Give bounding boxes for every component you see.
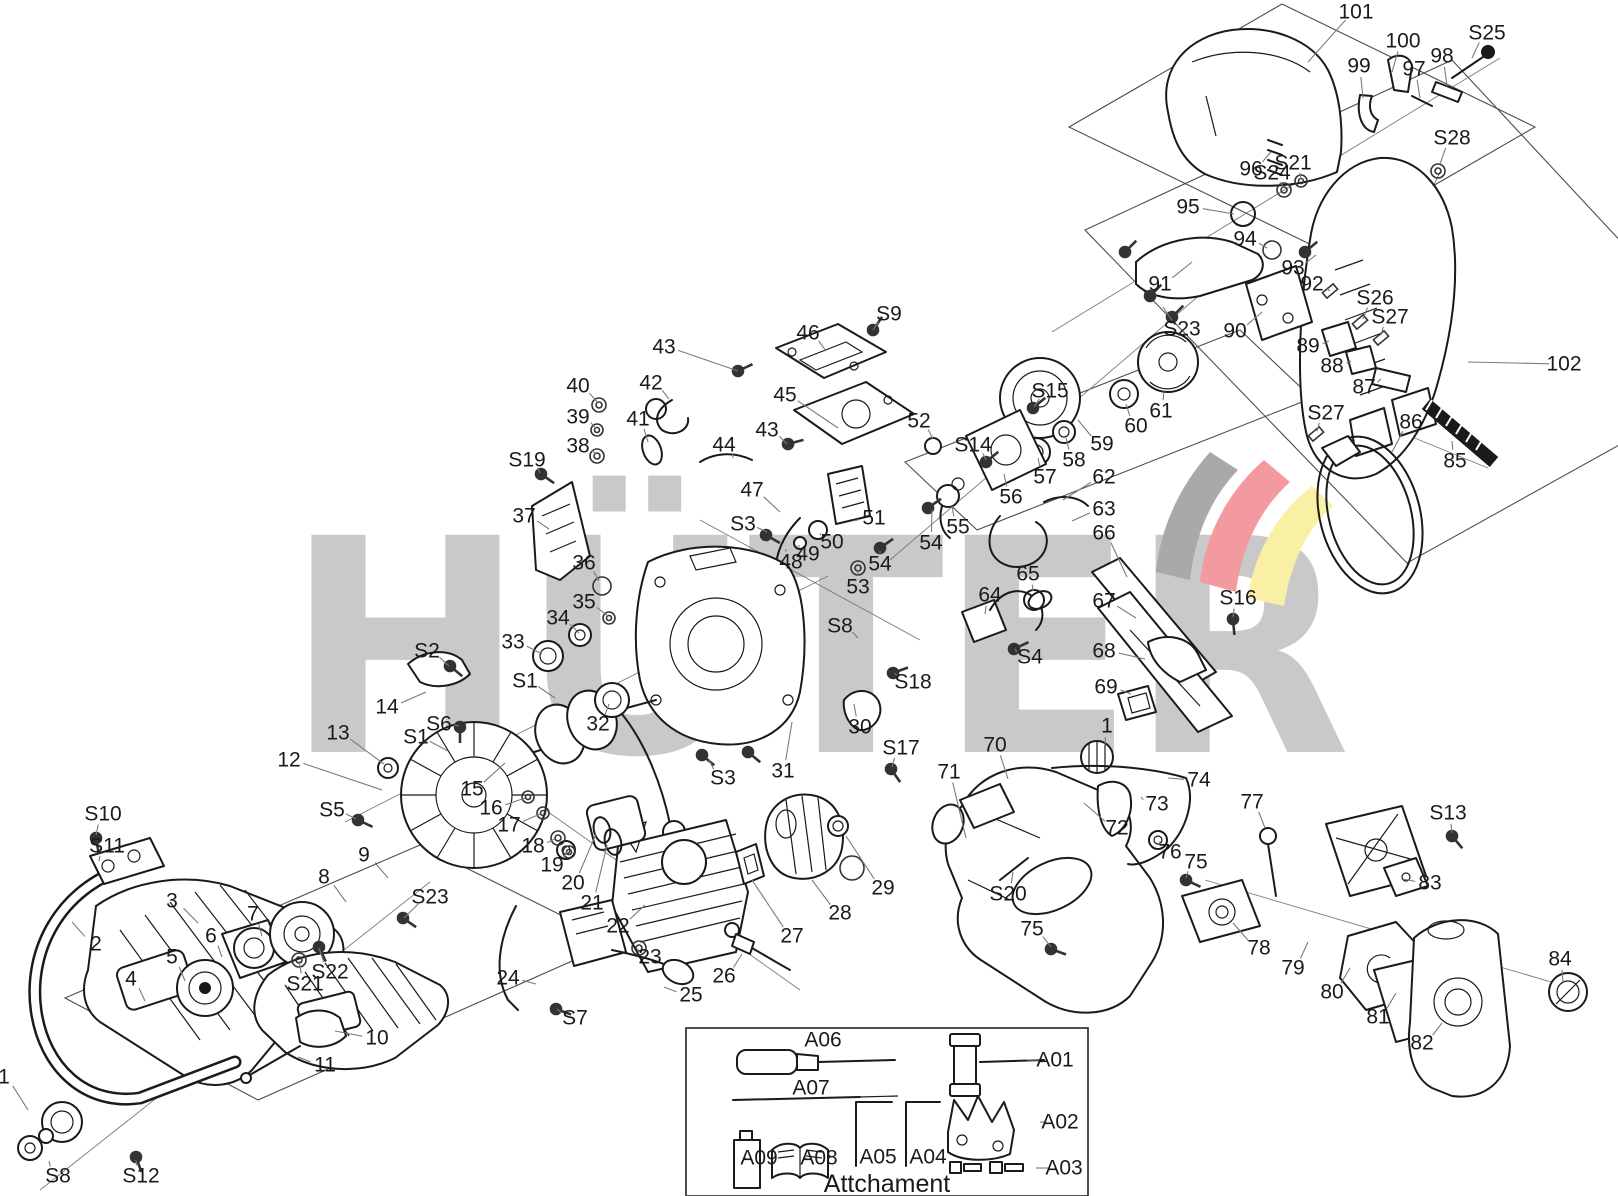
part-label-91: 91	[1148, 273, 1171, 296]
part-label-67: 67	[1092, 590, 1115, 613]
part-label-S28: S28	[1433, 127, 1470, 150]
part-label-S6: S6	[426, 713, 452, 736]
part-label-30: 30	[848, 716, 871, 739]
part-label-86: 86	[1399, 411, 1422, 434]
part-label-74: 74	[1187, 769, 1211, 792]
part-label-50: 50	[820, 531, 843, 554]
throttle-trigger-drawing	[296, 1011, 346, 1047]
part-label-43: 43	[652, 336, 675, 359]
part-label-76: 76	[1158, 841, 1181, 864]
choke-rod-drawing	[1260, 828, 1276, 896]
leader-line	[1472, 42, 1479, 58]
part-label-71: 71	[937, 761, 960, 784]
part-label-59: 59	[1090, 433, 1113, 456]
part-label-S18: S18	[894, 671, 931, 694]
part-label-97: 97	[1402, 58, 1425, 81]
ring-icon	[840, 856, 864, 880]
part-label-S23: S23	[1163, 318, 1200, 341]
part-label-1: 1	[1101, 715, 1113, 738]
part-label-17: 17	[497, 814, 520, 837]
leader-line	[334, 885, 346, 902]
brake-link-drawing	[1346, 346, 1376, 374]
part-label-S15: S15	[1031, 380, 1068, 403]
part-label-A06: A06	[804, 1029, 841, 1052]
part-label-S8: S8	[827, 615, 853, 638]
part-label-56: 56	[999, 486, 1022, 509]
part-label-28: 28	[828, 902, 851, 925]
part-label-88: 88	[1320, 355, 1343, 378]
part-label-73: 73	[1145, 793, 1168, 816]
part-label-S3: S3	[710, 767, 736, 790]
part-label-S9: S9	[876, 303, 902, 326]
clutch-washer-drawing	[1110, 380, 1138, 408]
part-label-78: 78	[1247, 937, 1270, 960]
part-label-S20: S20	[989, 883, 1026, 906]
part-label-A08: A08	[800, 1147, 837, 1170]
part-label-S10: S10	[84, 803, 121, 826]
part-label-3: 3	[166, 890, 178, 913]
part-label-46: 46	[796, 322, 819, 345]
part-label-S4: S4	[1017, 646, 1043, 669]
part-label-S21: S21	[1274, 152, 1311, 175]
part-label-87: 87	[1352, 376, 1375, 399]
part-label-S12: S12	[122, 1165, 159, 1188]
part-label-80: 80	[1320, 981, 1343, 1004]
ring-icon	[1263, 241, 1281, 259]
part-label-41: 41	[626, 408, 649, 431]
part-label-31: 31	[771, 760, 794, 783]
fuel-cap-drawing	[1549, 973, 1587, 1011]
part-label-84: 84	[1548, 948, 1572, 971]
part-label-58: 58	[1062, 449, 1085, 472]
exploded-view-svg: HÜTER	[0, 0, 1618, 1196]
carburetor-drawing	[1182, 880, 1260, 942]
part-label-101: 101	[1338, 1, 1373, 24]
needle-bearing-drawing	[1053, 421, 1075, 443]
screw-icon	[783, 439, 804, 450]
part-label-S25: S25	[1468, 22, 1505, 45]
part-label-S3: S3	[730, 513, 756, 536]
part-label-34: 34	[546, 607, 570, 630]
leader-line	[931, 510, 932, 532]
part-label-52: 52	[907, 410, 930, 433]
screw-icon	[1181, 875, 1201, 887]
part-label-44: 44	[712, 434, 736, 457]
part-label-98: 98	[1430, 45, 1453, 68]
part-label-66: 66	[1092, 522, 1115, 545]
part-label-10: 10	[365, 1027, 388, 1050]
leader-line	[596, 845, 607, 892]
part-label-70: 70	[983, 734, 1006, 757]
hook-drawing	[1359, 95, 1378, 132]
leader-line	[1417, 80, 1420, 98]
part-label-14: 14	[375, 696, 399, 719]
part-label-S27: S27	[1307, 402, 1344, 425]
leader-line	[1468, 362, 1549, 364]
part-label-29: 29	[871, 877, 894, 900]
part-label-S5: S5	[319, 799, 345, 822]
oil-line-valve-drawing	[925, 438, 941, 454]
leader-line	[846, 836, 874, 879]
part-label-A05: A05	[859, 1146, 896, 1169]
part-label-9: 9	[358, 844, 370, 867]
bolt-drawing	[1452, 45, 1495, 78]
part-label-1: 1	[0, 1066, 10, 1089]
part-label-61: 61	[1149, 400, 1172, 423]
kill-wire-drawing	[500, 906, 518, 1010]
part-label-4: 4	[125, 968, 137, 991]
part-label-S1: S1	[512, 670, 538, 693]
part-label-A09: A09	[740, 1147, 777, 1170]
part-label-68: 68	[1092, 640, 1115, 663]
part-label-62: 62	[1092, 466, 1115, 489]
carb-gasket-drawing	[794, 382, 914, 444]
screw-icon	[1120, 241, 1137, 258]
clutch-drawing	[1138, 332, 1198, 392]
part-label-45: 45	[773, 384, 796, 407]
part-label-53: 53	[846, 576, 869, 599]
part-label-S27: S27	[1371, 306, 1408, 329]
part-label-S16: S16	[1219, 587, 1256, 610]
leader-line	[752, 880, 783, 927]
part-label-23: 23	[638, 946, 661, 969]
part-label-65: 65	[1016, 563, 1039, 586]
screw-icon	[1447, 831, 1463, 849]
part-label-48: 48	[779, 551, 802, 574]
flange-nut-drawing	[828, 816, 848, 836]
part-label-33: 33	[501, 631, 524, 654]
part-label-69: 69	[1094, 676, 1117, 699]
leader-line	[662, 390, 669, 399]
leader-line	[375, 863, 388, 878]
part-label-A02: A02	[1041, 1111, 1078, 1134]
part-label-79: 79	[1281, 957, 1304, 980]
attachment-box: Attchament	[686, 1028, 1088, 1196]
part-label-99: 99	[1347, 55, 1370, 78]
part-label-51: 51	[862, 507, 885, 530]
part-label-95: 95	[1176, 196, 1199, 219]
part-label-27: 27	[780, 925, 803, 948]
fuel-filter-drawing	[638, 433, 665, 467]
part-label-38: 38	[566, 435, 589, 458]
leader-line	[1203, 209, 1234, 214]
oil-seal-drawing	[18, 1102, 82, 1160]
leader-line	[72, 922, 85, 937]
part-label-36: 36	[572, 552, 595, 575]
part-label-S19: S19	[508, 449, 545, 472]
crankcase-drawing	[636, 547, 805, 745]
part-drawings: Attchament	[18, 29, 1587, 1196]
part-label-19: 19	[540, 854, 563, 877]
retaining-ring-drawing	[1231, 202, 1255, 226]
leader-line	[13, 1086, 28, 1110]
muffler-drawing	[765, 794, 843, 878]
part-label-92: 92	[1300, 273, 1323, 296]
part-label-40: 40	[566, 375, 589, 398]
leader-line	[1032, 585, 1033, 591]
part-label-54: 54	[919, 532, 943, 555]
part-label-90: 90	[1223, 320, 1246, 343]
part-label-26: 26	[712, 965, 735, 988]
part-label-43: 43	[755, 419, 778, 442]
nut-icon	[592, 398, 606, 412]
part-label-25: 25	[679, 984, 702, 1007]
part-label-21: 21	[580, 892, 603, 915]
part-label-S21: S21	[286, 973, 323, 996]
part-label-S17: S17	[882, 737, 919, 760]
part-label-100: 100	[1385, 30, 1420, 53]
part-label-85: 85	[1443, 450, 1466, 473]
part-label-81: 81	[1366, 1006, 1389, 1029]
part-label-77: 77	[1240, 791, 1263, 814]
part-label-2: 2	[90, 933, 102, 956]
part-label-5: 5	[166, 946, 178, 969]
tank-drawing	[1409, 920, 1510, 1096]
part-label-39: 39	[566, 406, 589, 429]
part-label-S13: S13	[1429, 802, 1466, 825]
leader-line	[1440, 148, 1446, 164]
part-label-12: 12	[277, 749, 300, 772]
part-label-63: 63	[1092, 498, 1115, 521]
leader-line	[678, 350, 738, 371]
part-label-S23: S23	[411, 886, 448, 909]
part-label-S8: S8	[45, 1165, 71, 1188]
part-label-64: 64	[978, 584, 1002, 607]
part-label-7: 7	[247, 903, 259, 926]
av-buffer-drawing	[1081, 741, 1113, 773]
chainsaw-parts-diagram: HÜTER	[0, 0, 1618, 1196]
part-label-A07: A07	[792, 1077, 829, 1100]
part-label-22: 22	[606, 915, 629, 938]
leader-line	[664, 987, 677, 992]
part-label-35: 35	[572, 591, 595, 614]
part-label-S7: S7	[562, 1007, 588, 1030]
part-label-75: 75	[1020, 918, 1043, 941]
part-label-S2: S2	[414, 640, 440, 663]
part-label-89: 89	[1296, 335, 1319, 358]
part-label-32: 32	[586, 713, 609, 736]
part-label-72: 72	[1105, 817, 1128, 840]
part-label-8: 8	[318, 866, 330, 889]
part-label-83: 83	[1418, 872, 1441, 895]
part-label-13: 13	[326, 722, 349, 745]
part-label-A03: A03	[1045, 1157, 1082, 1180]
part-label-11: 11	[314, 1054, 336, 1077]
part-label-S1: S1	[403, 726, 429, 749]
part-label-75: 75	[1184, 851, 1207, 874]
part-label-A01: A01	[1036, 1049, 1073, 1072]
part-label-6: 6	[205, 925, 217, 948]
part-label-37: 37	[512, 505, 535, 528]
part-label-A04: A04	[909, 1146, 947, 1169]
part-label-57: 57	[1033, 466, 1056, 489]
leader-line	[592, 450, 596, 454]
nut-icon	[551, 831, 565, 845]
part-label-54: 54	[868, 553, 892, 576]
part-label-102: 102	[1546, 353, 1581, 376]
part-label-47: 47	[740, 479, 763, 502]
part-label-S14: S14	[954, 434, 992, 457]
part-label-24: 24	[496, 967, 520, 990]
part-label-55: 55	[946, 516, 969, 539]
part-label-42: 42	[639, 372, 662, 395]
washer-icon	[591, 424, 603, 436]
part-label-S11: S11	[89, 835, 125, 858]
part-label-60: 60	[1124, 415, 1147, 438]
attachment-caption: Attchament	[824, 1170, 951, 1196]
part-label-82: 82	[1410, 1032, 1433, 1055]
handle-molding-drawing	[254, 952, 448, 1069]
part-label-94: 94	[1233, 228, 1257, 251]
flywheel-washer-drawing	[378, 758, 398, 778]
